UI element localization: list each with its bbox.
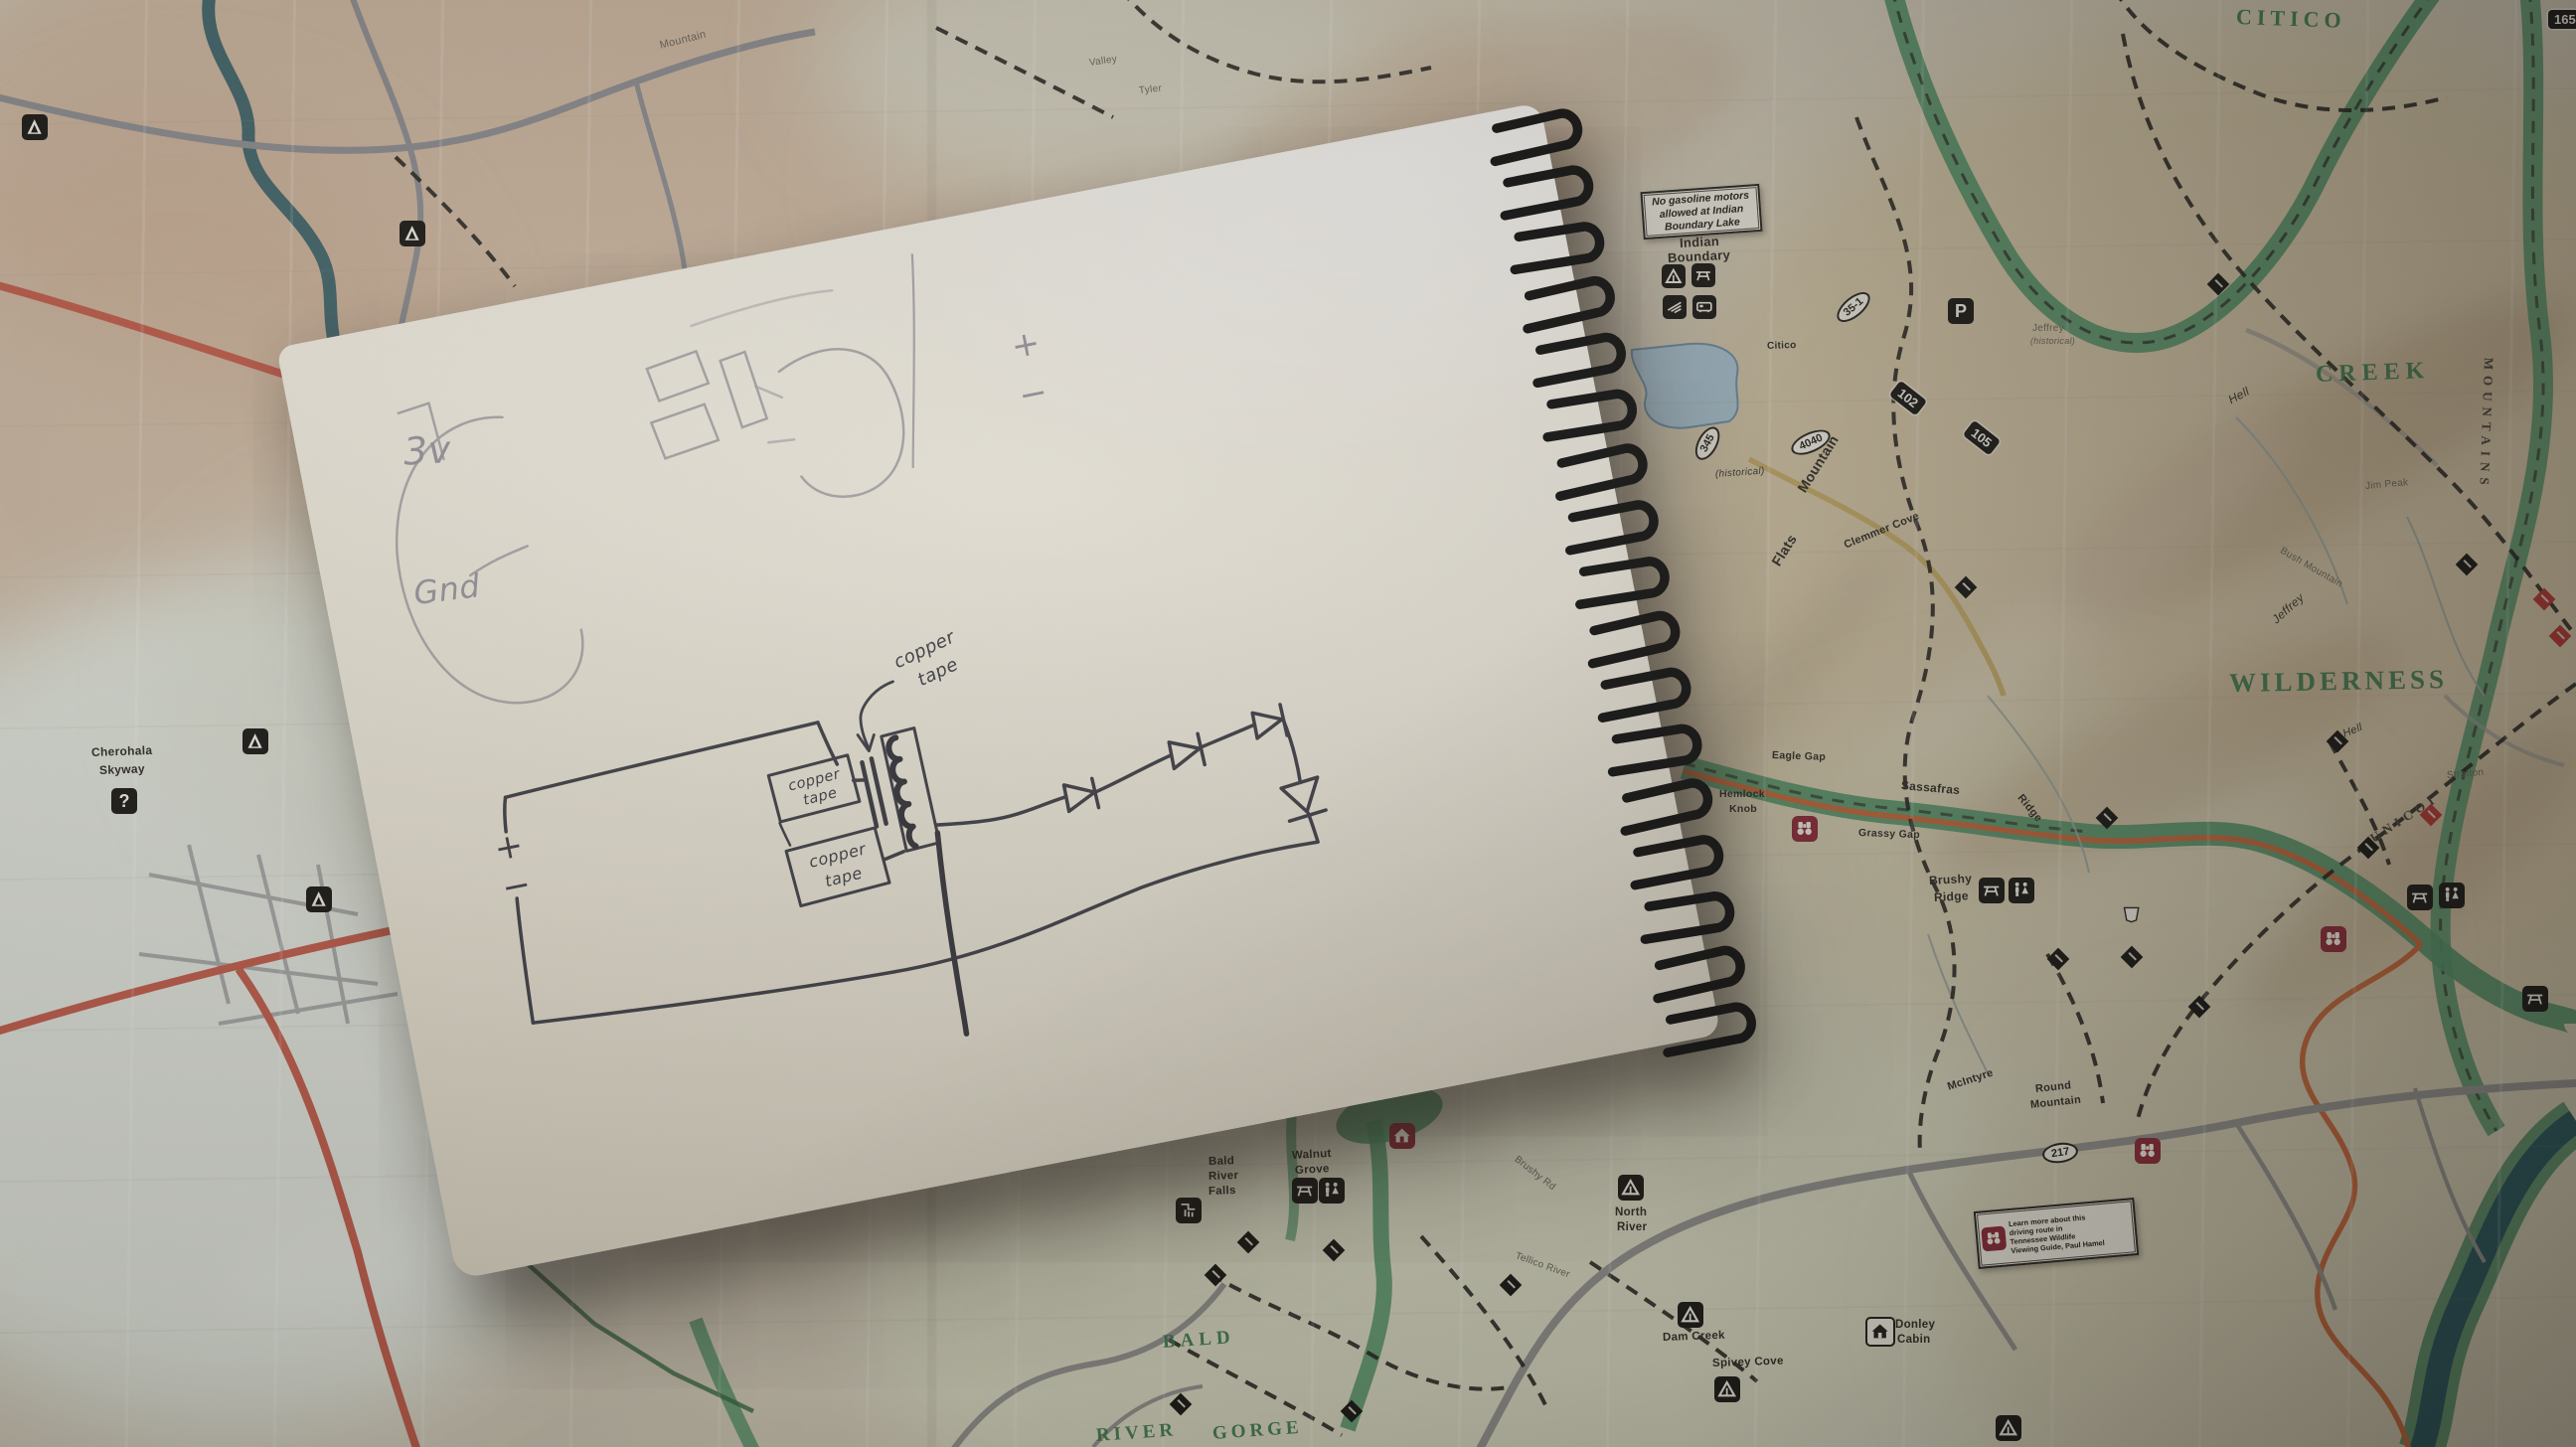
picnic-table-icon [1292, 1178, 1318, 1204]
spiral-loop [1640, 894, 1732, 940]
spiral-loop [1521, 278, 1614, 329]
map-place-label: Walnut [1292, 1148, 1332, 1162]
map-place-label: North [1615, 1206, 1647, 1218]
area-label: WILDERNESS [2229, 664, 2449, 699]
map-place-label: Spivey Cove [1712, 1356, 1784, 1369]
trail-diamond-marker-red [2549, 625, 2572, 648]
spiral-loop [1629, 837, 1721, 884]
restroom-icon [2439, 883, 2465, 908]
map-place-label: Dam Creek [1663, 1330, 1725, 1344]
mountain-range-label: MOUNTAINS [2476, 357, 2496, 490]
lodge-icon [1389, 1123, 1415, 1149]
trail-diamond-marker [1205, 1264, 1227, 1287]
tent-icon [1996, 1415, 2021, 1441]
binoculars-icon [2135, 1138, 2161, 1164]
trail-diamond-marker [1500, 1274, 1523, 1297]
map-place-label: River [1617, 1221, 1647, 1233]
map-place-label: (historical) [2030, 336, 2075, 346]
spiral-loop [1596, 670, 1689, 718]
route-marker: 165 [2548, 10, 2576, 29]
map-sign: Learn more about thisdriving route inTen… [1974, 1198, 2139, 1269]
picnic-table-icon [1979, 878, 2005, 903]
map-place-label: Tyler [1138, 83, 1162, 96]
map-place-label: Brushy Rd [1513, 1154, 1558, 1193]
trail-diamond-marker [2047, 948, 2070, 971]
area-label: CITICO [2236, 4, 2347, 34]
binoculars-icon [1981, 1225, 2007, 1251]
map-place-label: Cabin [1897, 1334, 1930, 1346]
picnic-table-icon [2522, 986, 2548, 1012]
map-place-label: Donley [1895, 1319, 1935, 1331]
map-place-label: Cherohala [91, 743, 153, 759]
route-marker: 217 [2041, 1141, 2080, 1166]
trail-diamond-marker [1170, 1393, 1193, 1416]
map-place-label: Mountain [659, 29, 708, 52]
waterfall-icon [1176, 1198, 1202, 1223]
spiral-loop [1662, 1005, 1754, 1052]
spiral-loop [1553, 445, 1647, 496]
info-icon: ? [111, 788, 137, 814]
restroom-icon [2009, 878, 2034, 903]
spiral-loop [1575, 560, 1668, 605]
spiral-loop [1651, 947, 1744, 998]
map-place-label: Round [2034, 1079, 2071, 1095]
trail-diamond-marker [1955, 576, 1978, 599]
trailhead-icon [242, 728, 268, 754]
trail-diamond-marker [2188, 996, 2211, 1019]
spiral-loop [1585, 613, 1679, 664]
cabin-icon [1865, 1317, 1895, 1347]
map-place-label: Stratton [2447, 767, 2485, 781]
map-place-label: Bush Mountain [2278, 546, 2344, 590]
route-marker: 35-1 [1832, 286, 1875, 327]
route-marker: 105 [1963, 420, 2001, 456]
spiral-loop [1542, 392, 1635, 437]
map-place-label: McIntyre [1946, 1067, 1995, 1093]
spiral-loop [1499, 168, 1591, 216]
map-place-label: Mountain [2029, 1094, 2081, 1111]
tent-icon [1714, 1376, 1740, 1402]
spiral-loop [1564, 502, 1657, 550]
binoculars-icon [2321, 926, 2346, 952]
spiral-loop [1608, 726, 1700, 772]
map-place-label: Sassafras [1900, 778, 1960, 797]
map-place-label: Brushy [1929, 872, 1973, 887]
spiral-loop [1510, 225, 1602, 270]
trail-diamond-marker [2207, 273, 2230, 296]
map-place-label: Falls [1208, 1185, 1236, 1198]
map-place-label: Jim Peak [2365, 477, 2409, 492]
trail-diamond-marker [2456, 554, 2479, 576]
spiral-loop [1531, 335, 1624, 383]
map-place-label: Hell [2226, 385, 2252, 407]
trail-diamond-marker-red [2533, 588, 2556, 611]
area-label: RIVER [1095, 1419, 1178, 1447]
tent-icon [1618, 1175, 1644, 1201]
trail-diamond-marker [1237, 1231, 1260, 1254]
area-label: CREEK [2316, 358, 2431, 389]
map-place-label: Jeffrey [2269, 590, 2307, 626]
restroom-icon [1319, 1178, 1345, 1204]
trailhead-icon [22, 114, 48, 140]
map-place-label: Valley [1088, 54, 1118, 69]
trail-diamond-marker [1341, 1400, 1364, 1423]
area-label: GORGE [1211, 1417, 1303, 1445]
map-place-label: Clemmer Cove [1843, 510, 1921, 551]
spiral-loop [1488, 110, 1581, 161]
map-place-label: Ridge [1934, 888, 1970, 904]
picnic-table-icon [2407, 884, 2433, 910]
tent-icon [1678, 1302, 1703, 1328]
map-place-label: Grove [1295, 1163, 1330, 1177]
trailhead-icon [400, 221, 425, 246]
map-place-label: Tellico River [1514, 1250, 1571, 1280]
trail-diamond-marker [2121, 946, 2144, 969]
trail-diamond-marker [1323, 1239, 1346, 1262]
parking-icon: P [1948, 298, 1974, 324]
map-place-label: Jeffrey [2032, 323, 2064, 334]
area-label: BALD [1162, 1327, 1235, 1354]
map-place-label: Skyway [99, 761, 145, 777]
route-marker: 102 [1889, 381, 1927, 416]
spiral-loop [1618, 780, 1711, 831]
route-shield-icon [2119, 901, 2145, 927]
photo-scene: CITICOCREEKWILDERNESSBALDRIVERGORGEMOUNT… [0, 0, 2576, 1447]
trailhead-icon [306, 886, 332, 912]
map-place-label: Ridge [2014, 792, 2044, 824]
trail-diamond-marker [2096, 807, 2119, 830]
map-place-label: River [1208, 1170, 1239, 1183]
